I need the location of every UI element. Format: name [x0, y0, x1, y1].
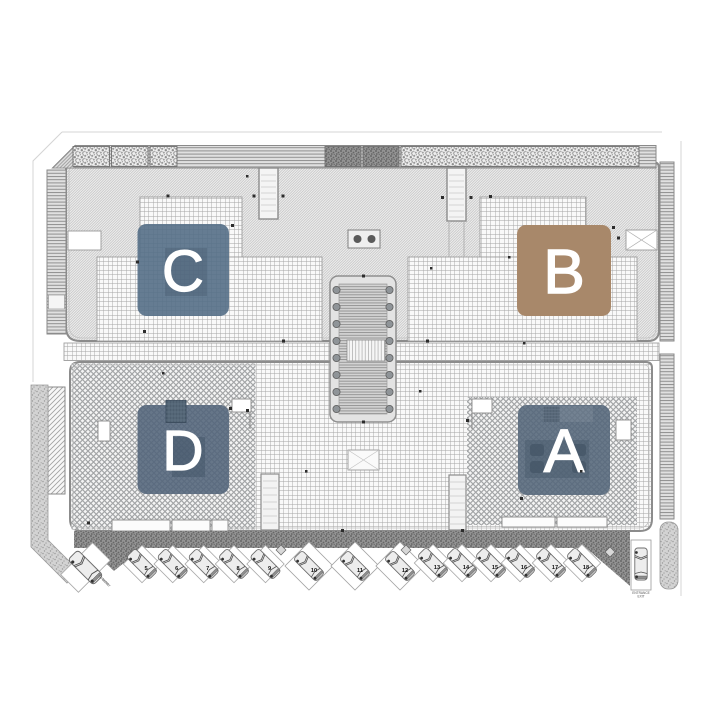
svg-text:14: 14 — [463, 565, 470, 571]
svg-text:5: 5 — [144, 566, 147, 572]
svg-text:A: A — [544, 417, 585, 485]
svg-text:18: 18 — [583, 565, 589, 571]
svg-text:B: B — [543, 238, 584, 307]
svg-text:16: 16 — [521, 565, 527, 571]
svg-text:17: 17 — [552, 565, 558, 571]
svg-text:12: 12 — [402, 568, 408, 574]
svg-text:15: 15 — [492, 565, 498, 571]
svg-text:10: 10 — [311, 568, 317, 574]
svg-text:13: 13 — [434, 565, 440, 571]
svg-text:6: 6 — [175, 566, 178, 572]
svg-text:7: 7 — [206, 566, 209, 572]
svg-text:C: C — [162, 239, 204, 304]
svg-text:D: D — [162, 419, 203, 483]
svg-text:11: 11 — [357, 568, 363, 574]
svg-text:8: 8 — [236, 566, 239, 572]
svg-text:9: 9 — [268, 566, 271, 572]
svg-text:EXIT: EXIT — [637, 595, 644, 599]
